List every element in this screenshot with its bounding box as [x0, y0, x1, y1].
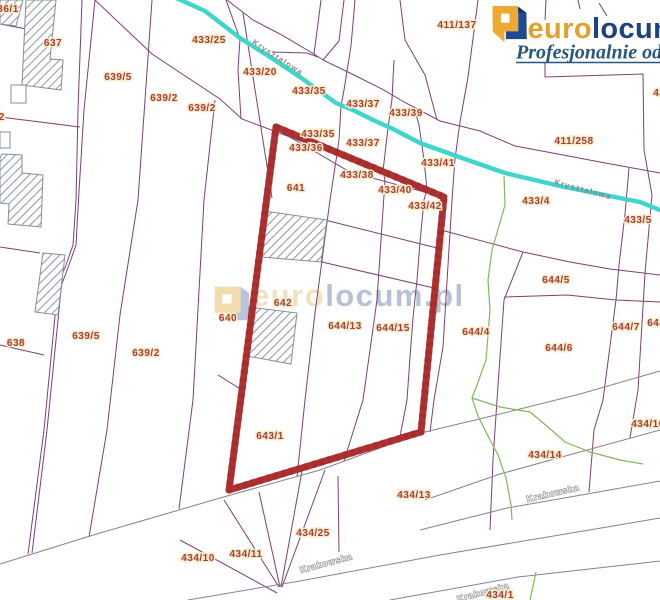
svg-text:433/35: 433/35 — [292, 86, 326, 97]
svg-text:638: 638 — [7, 338, 25, 349]
svg-text:433/20: 433/20 — [243, 67, 277, 78]
svg-text:639/5: 639/5 — [104, 72, 132, 83]
svg-text:433/36: 433/36 — [289, 143, 323, 154]
svg-text:639/5: 639/5 — [72, 331, 100, 342]
svg-text:433/40: 433/40 — [378, 185, 412, 196]
svg-text:411/137: 411/137 — [437, 20, 476, 31]
svg-text:644/4: 644/4 — [462, 327, 490, 338]
svg-text:434/11: 434/11 — [229, 549, 262, 560]
svg-text:636/1: 636/1 — [0, 4, 19, 15]
svg-text:640: 640 — [219, 313, 237, 324]
svg-text:434/16: 434/16 — [631, 419, 660, 430]
svg-text:642: 642 — [274, 298, 292, 309]
svg-text:643/1: 643/1 — [256, 431, 284, 442]
svg-text:637: 637 — [44, 38, 62, 49]
svg-text:644/1: 644/1 — [647, 318, 660, 329]
svg-text:434/13: 434/13 — [397, 490, 431, 501]
svg-text:433/35: 433/35 — [301, 129, 335, 140]
svg-text:433/37: 433/37 — [346, 99, 380, 110]
svg-text:433/4: 433/4 — [522, 196, 550, 207]
svg-text:433/25: 433/25 — [192, 35, 226, 46]
svg-text:eurolocum: eurolocum — [528, 13, 660, 45]
svg-text:639/2: 639/2 — [188, 103, 216, 114]
svg-text:644/6: 644/6 — [545, 343, 573, 354]
svg-text:641: 641 — [287, 183, 305, 194]
svg-text:644/15: 644/15 — [376, 323, 410, 334]
svg-text:434/10: 434/10 — [181, 553, 215, 564]
svg-text:644/5: 644/5 — [542, 275, 570, 286]
svg-text:639/2: 639/2 — [132, 348, 160, 359]
svg-text:433/5: 433/5 — [624, 215, 652, 226]
svg-text:644/13: 644/13 — [328, 321, 362, 332]
svg-text:411/258: 411/258 — [554, 136, 593, 147]
svg-text:644/7: 644/7 — [612, 322, 640, 333]
svg-text:433/42: 433/42 — [408, 201, 442, 212]
svg-text:639/2: 639/2 — [150, 93, 178, 104]
svg-text:434/1: 434/1 — [486, 590, 514, 600]
svg-text:434/25: 434/25 — [296, 528, 330, 539]
svg-text:433/37: 433/37 — [653, 88, 660, 99]
svg-text:433/37: 433/37 — [346, 138, 380, 149]
svg-text:433/41: 433/41 — [421, 158, 455, 169]
svg-text:433/38: 433/38 — [340, 170, 374, 181]
svg-text:433/39: 433/39 — [389, 108, 423, 119]
svg-text:639/2: 639/2 — [0, 112, 5, 123]
svg-text:Profesjonalnie od: Profesjonalnie od — [515, 42, 660, 64]
svg-text:434/14: 434/14 — [528, 450, 562, 461]
